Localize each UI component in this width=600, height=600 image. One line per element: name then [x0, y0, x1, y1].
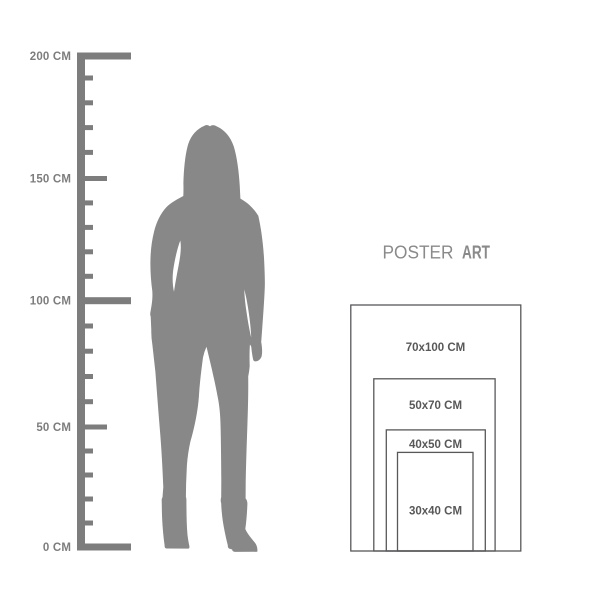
svg-text:30x40 CM: 30x40 CM	[409, 506, 462, 518]
svg-text:200 CM: 200 CM	[30, 51, 71, 63]
svg-text:0 CM: 0 CM	[43, 542, 71, 554]
svg-text:POSTER: POSTER	[383, 242, 454, 263]
svg-text:50x70 CM: 50x70 CM	[409, 400, 462, 412]
svg-text:ART: ART	[462, 242, 490, 263]
svg-text:50 CM: 50 CM	[36, 422, 71, 434]
svg-text:100 CM: 100 CM	[30, 296, 71, 308]
svg-text:70x100 CM: 70x100 CM	[406, 342, 465, 354]
svg-text:40x50 CM: 40x50 CM	[409, 439, 462, 451]
svg-text:150 CM: 150 CM	[30, 174, 71, 186]
